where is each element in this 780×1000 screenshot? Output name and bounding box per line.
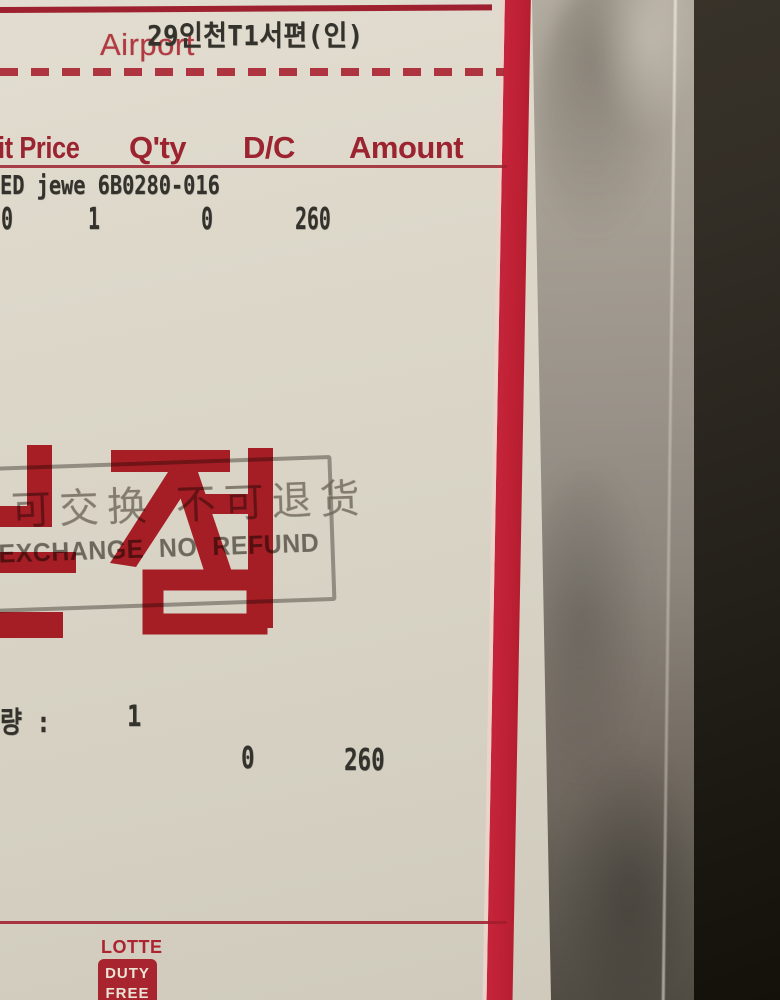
item-code-line: ED jewe 6B0280-016 bbox=[0, 171, 220, 201]
hangul-jeom bbox=[110, 448, 273, 628]
duty-free-logo-box: DUTY FREE bbox=[98, 959, 157, 1000]
header-underline bbox=[0, 165, 507, 168]
item-value-amount: 260 bbox=[295, 202, 331, 237]
hangul-bon-partial bbox=[0, 445, 76, 638]
big-red-stamp-text bbox=[0, 430, 310, 665]
header-amount: Amount bbox=[349, 130, 463, 166]
top-red-line bbox=[0, 4, 492, 13]
quantity-label: 량 : bbox=[0, 699, 51, 741]
item-value-qty: 1 bbox=[88, 202, 100, 237]
item-value-unit-price: 0 bbox=[1, 202, 13, 237]
duty-label: DUTY bbox=[98, 964, 157, 984]
dashed-red-line bbox=[0, 68, 504, 76]
bottom-red-line bbox=[0, 921, 507, 924]
quantity-value: 1 bbox=[127, 699, 141, 733]
header-qty: Q'ty bbox=[129, 130, 186, 166]
red-edge-stripe bbox=[482, 0, 531, 1000]
photo-canvas: Airport 29인천T1서편(인) it Price Q'ty D/C Am… bbox=[0, 0, 780, 1000]
route-code: 29인천T1서편(인) bbox=[147, 14, 364, 54]
plastic-wrinkle-shadow-bottom bbox=[553, 740, 693, 1000]
totals-amount-value: 260 bbox=[344, 743, 385, 778]
lotte-brand-text: LOTTE bbox=[101, 937, 163, 958]
free-label: FREE bbox=[98, 984, 157, 1000]
totals-dc-value: 0 bbox=[241, 741, 255, 776]
header-unit-price: it Price bbox=[0, 130, 80, 166]
paper-bag: Airport 29인천T1서편(인) it Price Q'ty D/C Am… bbox=[0, 0, 560, 1000]
item-value-dc: 0 bbox=[201, 202, 213, 237]
header-dc: D/C bbox=[243, 130, 295, 166]
